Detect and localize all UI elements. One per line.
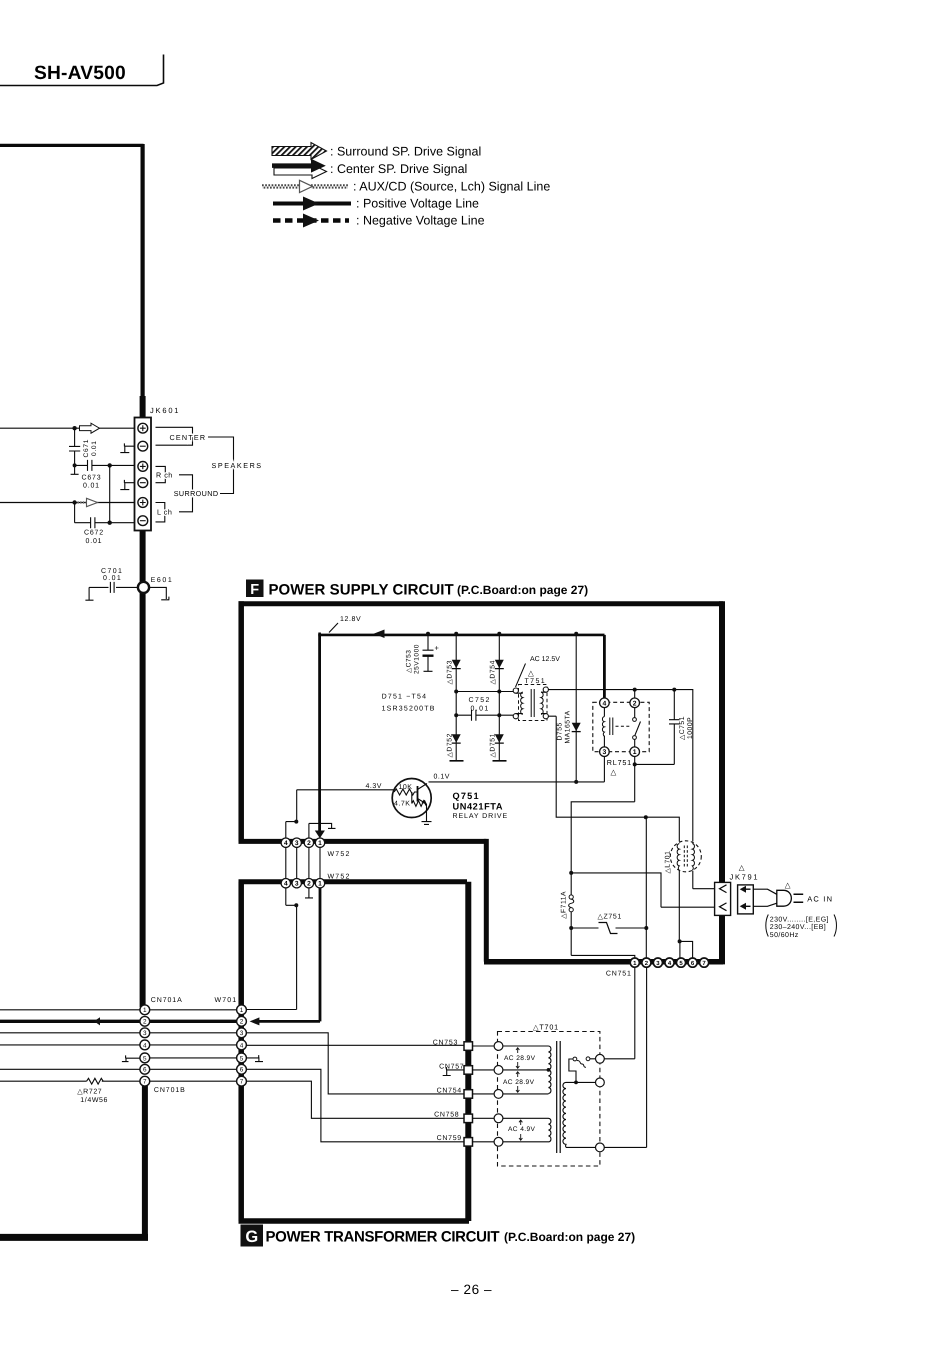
- svg-text:2: 2: [307, 840, 311, 847]
- svg-text:1: 1: [633, 749, 637, 756]
- svg-text:25V1000: 25V1000: [414, 644, 421, 674]
- svg-text:1: 1: [318, 840, 322, 847]
- svg-text:5: 5: [143, 1055, 147, 1062]
- svg-text:CN751: CN751: [606, 971, 632, 978]
- svg-text:3: 3: [295, 840, 299, 847]
- svg-text:CN757: CN757: [439, 1063, 464, 1070]
- svg-text:6: 6: [240, 1067, 244, 1074]
- svg-text:△: △: [611, 768, 617, 777]
- svg-text:3: 3: [603, 749, 607, 756]
- svg-text:△T701: △T701: [533, 1023, 559, 1032]
- svg-text:△: △: [785, 880, 791, 889]
- svg-text:4: 4: [603, 700, 607, 707]
- svg-text:4.3V: 4.3V: [366, 783, 382, 790]
- svg-text:3: 3: [143, 1030, 147, 1037]
- svg-text:230–240V...[EB]: 230–240V...[EB]: [770, 923, 826, 931]
- svg-text:2: 2: [633, 700, 637, 707]
- svg-text:12.8V: 12.8V: [340, 616, 361, 623]
- svg-text:AC 28.9V: AC 28.9V: [503, 1079, 535, 1086]
- svg-text:RL751: RL751: [607, 758, 632, 767]
- svg-text:△D753: △D753: [447, 660, 454, 684]
- svg-text:7: 7: [240, 1079, 244, 1086]
- svg-text:5: 5: [240, 1055, 244, 1062]
- svg-text:E601: E601: [151, 577, 174, 584]
- svg-text:△D751: △D751: [490, 733, 497, 757]
- svg-text:POWER SUPPLY CIRCUIT: POWER SUPPLY CIRCUIT: [269, 582, 454, 599]
- svg-text:CN759: CN759: [437, 1135, 462, 1142]
- svg-text:0.01: 0.01: [86, 538, 103, 545]
- svg-text:4: 4: [284, 881, 288, 888]
- svg-text:CENTER: CENTER: [170, 433, 207, 442]
- svg-text:CN758: CN758: [434, 1111, 459, 1118]
- svg-text:G: G: [245, 1228, 258, 1246]
- svg-text:CN753: CN753: [433, 1039, 458, 1046]
- svg-text:SURROUND: SURROUND: [174, 489, 219, 498]
- svg-text:△D752: △D752: [447, 733, 454, 757]
- svg-text:4.7K: 4.7K: [394, 801, 410, 808]
- svg-text:2: 2: [143, 1019, 147, 1026]
- svg-text:1: 1: [143, 1007, 147, 1014]
- svg-text:230V........[E,EG]: 230V........[E,EG]: [770, 915, 829, 923]
- svg-text:UN421FTA: UN421FTA: [453, 801, 504, 811]
- svg-text:Q751: Q751: [453, 791, 480, 801]
- svg-text:RELAY DRIVE: RELAY DRIVE: [453, 813, 509, 820]
- svg-text:+: +: [435, 644, 440, 653]
- svg-text:SH-AV500: SH-AV500: [34, 63, 126, 84]
- svg-text:W752: W752: [328, 851, 351, 858]
- svg-text:(P.C.Board:on page 27): (P.C.Board:on page 27): [457, 583, 588, 597]
- svg-text:△C753: △C753: [406, 650, 413, 673]
- svg-text:4: 4: [143, 1042, 147, 1049]
- svg-text:CN701A: CN701A: [151, 997, 183, 1004]
- svg-text:6: 6: [143, 1067, 147, 1074]
- svg-text:F: F: [250, 582, 259, 598]
- svg-text:0.01: 0.01: [91, 440, 98, 456]
- svg-text:C673: C673: [82, 475, 102, 482]
- svg-text:C701: C701: [101, 568, 123, 575]
- svg-text:0.01: 0.01: [471, 706, 490, 713]
- svg-text:: Negative Voltage Line: : Negative Voltage Line: [356, 214, 485, 228]
- svg-text:1SR35200TB: 1SR35200TB: [382, 706, 436, 713]
- svg-text:R ch: R ch: [156, 470, 173, 479]
- svg-text:0.01: 0.01: [83, 483, 100, 490]
- svg-text:D755: D755: [557, 722, 564, 740]
- svg-text:△F711A: △F711A: [561, 891, 568, 919]
- svg-text:4: 4: [284, 840, 288, 847]
- svg-text:7: 7: [143, 1079, 147, 1086]
- svg-text:AC 4.9V: AC 4.9V: [508, 1126, 536, 1133]
- svg-text:△R727: △R727: [77, 1089, 102, 1096]
- svg-text:1: 1: [318, 881, 322, 888]
- svg-text:△C751: △C751: [679, 716, 686, 740]
- svg-text:AC IN: AC IN: [807, 894, 833, 903]
- svg-text:△L701: △L701: [665, 851, 672, 874]
- svg-text:3: 3: [295, 881, 299, 888]
- svg-text:1: 1: [240, 1007, 244, 1014]
- svg-text:AC 28.9V: AC 28.9V: [504, 1055, 536, 1062]
- svg-text:W701: W701: [215, 997, 238, 1004]
- svg-text:– 26 –: – 26 –: [451, 1282, 492, 1297]
- svg-text:△D754: △D754: [490, 660, 497, 684]
- svg-text:1000P: 1000P: [687, 717, 694, 739]
- svg-text:C752: C752: [469, 697, 491, 704]
- svg-text:: AUX/CD (Source, Lch) Signal: : AUX/CD (Source, Lch) Signal Line: [353, 180, 550, 194]
- svg-text:0.1V: 0.1V: [434, 773, 450, 780]
- svg-text:: Center SP. Drive Signal: : Center SP. Drive Signal: [330, 162, 467, 176]
- svg-text:L ch: L ch: [157, 507, 172, 516]
- svg-text:(P.C.Board:on page 27): (P.C.Board:on page 27): [504, 1230, 635, 1244]
- svg-text:4: 4: [240, 1042, 244, 1049]
- svg-text:JK601: JK601: [150, 406, 180, 415]
- svg-text:△: △: [739, 863, 745, 872]
- svg-text:3: 3: [240, 1030, 244, 1037]
- svg-text:: Surround SP. Drive Signal: : Surround SP. Drive Signal: [330, 145, 481, 159]
- svg-text:△Z751: △Z751: [598, 914, 622, 921]
- svg-text:2: 2: [240, 1019, 244, 1026]
- svg-text:1/4W56: 1/4W56: [80, 1096, 108, 1104]
- svg-text:CN701B: CN701B: [154, 1087, 186, 1094]
- svg-text:SPEAKERS: SPEAKERS: [212, 461, 263, 470]
- svg-text:: Positive Voltage Line: : Positive Voltage Line: [356, 197, 479, 211]
- svg-text:W752: W752: [328, 874, 351, 881]
- svg-text:CN754: CN754: [437, 1087, 462, 1094]
- svg-text:MA165TA: MA165TA: [565, 710, 572, 743]
- svg-text:JK791: JK791: [730, 872, 760, 881]
- svg-text:0.01: 0.01: [103, 575, 122, 582]
- svg-text:C671: C671: [83, 439, 90, 458]
- svg-text:C672: C672: [84, 530, 104, 537]
- svg-text:2: 2: [307, 881, 311, 888]
- svg-text:△: △: [528, 669, 534, 678]
- svg-text:D751 −T54: D751 −T54: [382, 694, 428, 701]
- svg-text:POWER TRANSFORMER CIRCUIT: POWER TRANSFORMER CIRCUIT: [266, 1228, 500, 1245]
- svg-text:AC 12.5V: AC 12.5V: [530, 656, 560, 663]
- svg-text:50/60Hz: 50/60Hz: [770, 931, 799, 939]
